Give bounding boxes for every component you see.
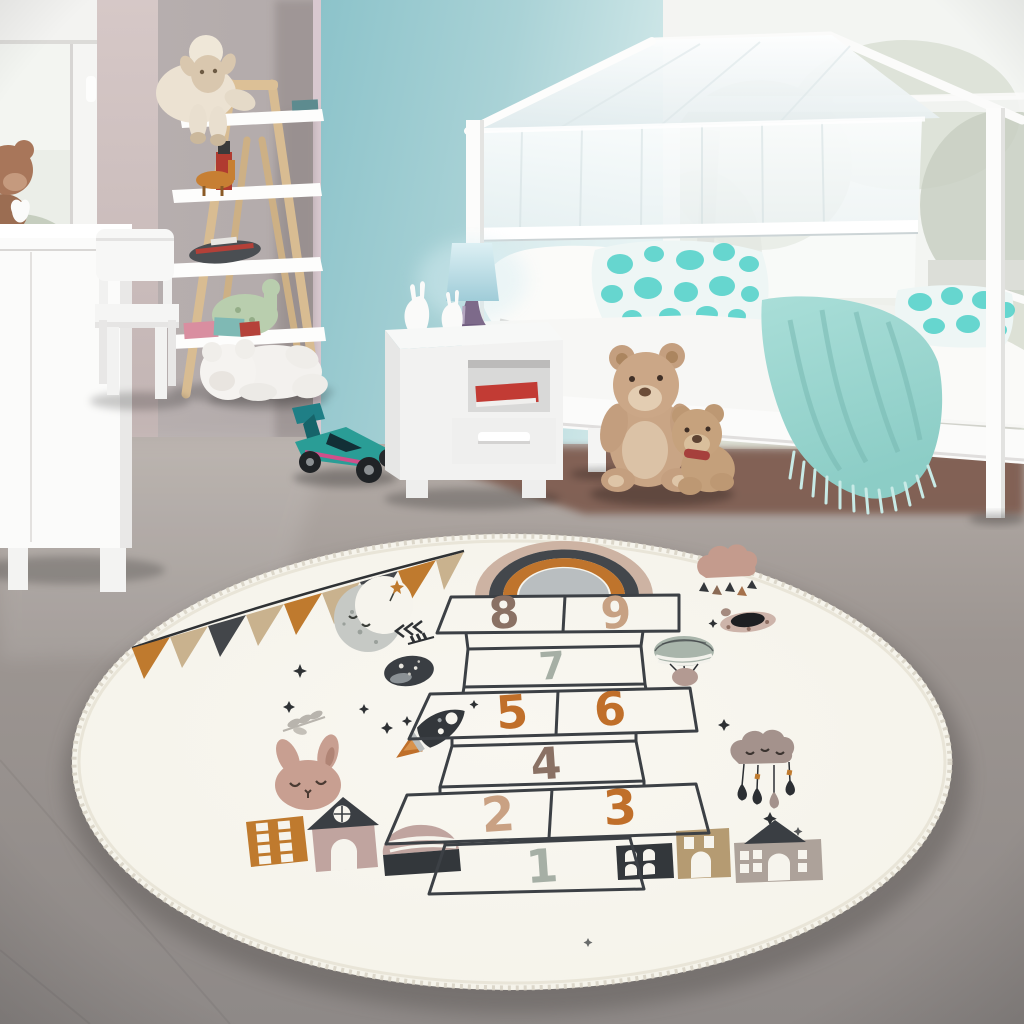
- vignette-overlay: [0, 0, 1024, 1024]
- scene-illustration: 8 9 7 5 6 4 2 3 1: [0, 0, 1024, 1024]
- kids-room-product-photo: 8 9 7 5 6 4 2 3 1: [0, 0, 1024, 1024]
